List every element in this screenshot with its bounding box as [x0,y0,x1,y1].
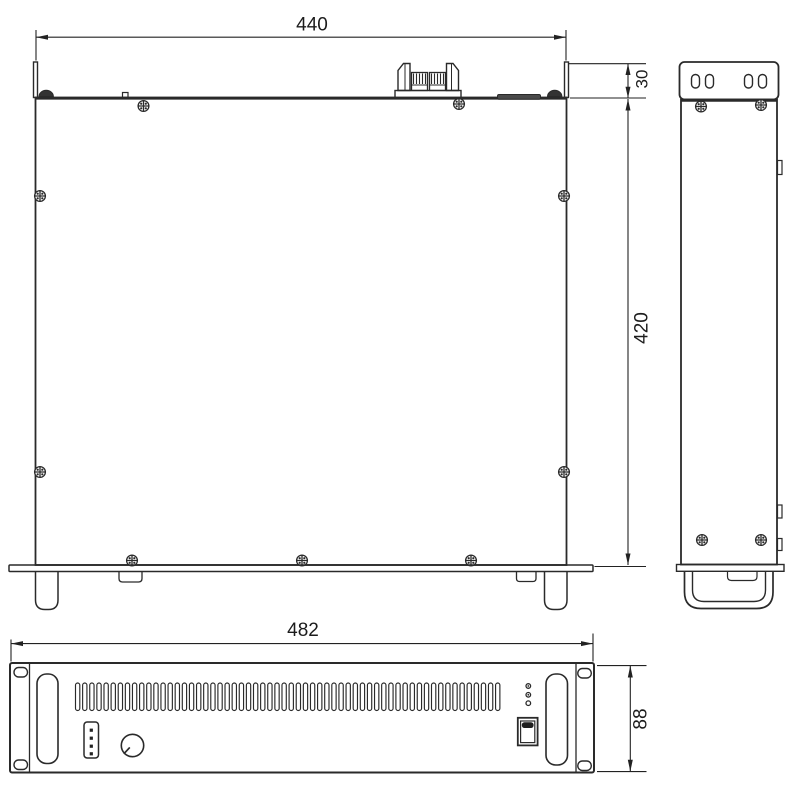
screw-terminal-2-ribs [430,74,446,86]
rear-rail-left [34,62,38,98]
side-handle-inner [693,571,766,601]
terminal-bracket-right [447,64,459,91]
rear-rail-right [565,62,569,98]
vent-slot [225,683,229,711]
technical-drawing-page: 440 30 420 482 88 [0,0,800,800]
connector-pin [90,729,93,732]
vent-slot [367,683,371,711]
vent-slot [396,683,400,711]
vent-slot [239,683,243,711]
rear-flat-connector [498,95,541,100]
arrow-left [11,641,23,646]
power-switch-rocker[interactable] [522,722,534,728]
vent-slot [197,683,201,711]
vent-slot [410,683,414,711]
screw [756,100,767,111]
vent-slot [389,683,393,711]
vent-slot [353,683,357,711]
arrow-up [628,666,633,678]
vent-slot [111,683,115,711]
front-handle-left [37,674,58,764]
vent-slot [382,683,386,711]
switch-top-view [517,572,537,582]
bracket-slot [759,75,767,89]
led-indicators [526,684,531,706]
rack-ear-hole [578,669,592,679]
screw [696,101,707,112]
connector-pin [90,737,93,740]
rack-ear-hole [578,761,592,771]
arrow-left [36,35,48,40]
top-view [9,62,593,610]
arrow-right [554,35,566,40]
vent-slot [488,683,492,711]
dimension-482: 482 [11,620,593,662]
rear-dome-left [39,90,53,96]
vent-slot [118,683,122,711]
side-foot-tab [778,539,783,551]
bracket-slot [706,75,714,89]
vent-slot [289,683,293,711]
led [526,701,531,706]
vent-slot [132,683,136,711]
front-handle-right [546,674,568,765]
vent-slot [403,683,407,711]
vent-slot [325,683,329,711]
vent-slot [189,683,193,711]
screw [138,101,149,112]
arrow-down [628,760,633,772]
knob-pointer [124,747,130,753]
dimension-420: 420 [595,99,653,567]
dim-label-88: 88 [631,708,652,729]
screw [697,535,708,546]
dim-label-482: 482 [287,620,319,641]
bracket-slot [745,75,753,89]
arrow-down [626,554,631,566]
dim-label-30: 30 [633,70,652,89]
rack-ear-hole [14,760,28,770]
dimension-30: 30 [569,64,652,98]
vent-slot [254,683,258,711]
vent-slot [275,683,279,711]
screw [454,99,465,110]
vent-slot [154,683,158,711]
dim-label-420: 420 [632,312,653,344]
vent-slot [161,683,165,711]
vent-slot [360,683,364,711]
arrow-right [581,641,593,646]
dim-label-440: 440 [296,15,328,36]
side-foot-tab [778,505,783,518]
vent-slot [474,683,478,711]
drawing-svg: 440 30 420 482 88 [0,0,800,800]
vent-slot [424,683,428,711]
vent-slot [467,683,471,711]
front-view [10,663,594,773]
vent-slot [439,683,443,711]
rack-ear-hole [14,668,28,678]
rear-terminal-block [395,64,461,98]
bracket-slot [692,75,700,89]
vent-slot [211,683,215,711]
top-view-chassis-body [36,98,567,566]
vent-slot [310,683,314,711]
vent-slot [346,683,350,711]
vent-slot [339,683,343,711]
side-view-screws [696,100,767,546]
dimension-88: 88 [597,666,652,772]
arrow-down [626,87,631,98]
vent-slot [246,683,250,711]
vent-slot [147,683,151,711]
pin-connector [84,722,99,758]
led-dot [527,694,529,696]
front-handle-right-top-view [545,572,568,610]
arrow-up [626,64,631,75]
screw [559,467,570,478]
vent-slot [232,683,236,711]
power-switch[interactable] [518,718,538,746]
vent-slot [282,683,286,711]
dimension-440: 440 [36,15,566,61]
vent-slot [432,683,436,711]
vent-slot [268,683,272,711]
screw [35,191,46,202]
vent-slot [104,683,108,711]
connector-pin [90,752,93,755]
vent-slot [481,683,485,711]
side-handle-outer [685,571,774,608]
screw [756,535,767,546]
vent-slot [303,683,307,711]
led-dot [527,685,529,687]
side-rear-bracket [680,62,779,100]
side-view [677,62,785,609]
vent-slot [218,683,222,711]
screw-terminal-1-ribs [412,74,428,86]
screw [35,467,46,478]
vent-slot [76,683,80,711]
vent-slot [182,683,186,711]
vent-slot [332,683,336,711]
terminal-bracket-left [398,64,410,91]
vent-slot [296,683,300,711]
front-handle-left-top-view [36,572,59,610]
vent-slot [375,683,379,711]
front-plate-side-view [677,565,785,572]
vent-slot [261,683,265,711]
connector-pin [90,745,93,748]
vent-grille [76,683,500,711]
knob-top-view [119,572,142,583]
vent-slot [496,683,500,711]
side-foot-tab [778,161,783,175]
vent-slot [83,683,87,711]
top-view-screws [35,99,570,566]
dimensions: 440 30 420 482 88 [11,15,653,772]
side-body [681,100,777,565]
vent-slot [97,683,101,711]
vent-slot [204,683,208,711]
rear-dome-right [548,90,562,96]
screw [559,191,570,202]
vent-slot [460,683,464,711]
vent-slot [175,683,179,711]
volume-knob[interactable] [121,734,143,756]
vent-slot [446,683,450,711]
vent-slot [318,683,322,711]
vent-slot [140,683,144,711]
vent-slot [417,683,421,711]
vent-slot [125,683,129,711]
switch-side-view [728,571,758,580]
arrow-up [626,99,631,111]
vent-slot [168,683,172,711]
vent-slot [90,683,94,711]
vent-slot [453,683,457,711]
